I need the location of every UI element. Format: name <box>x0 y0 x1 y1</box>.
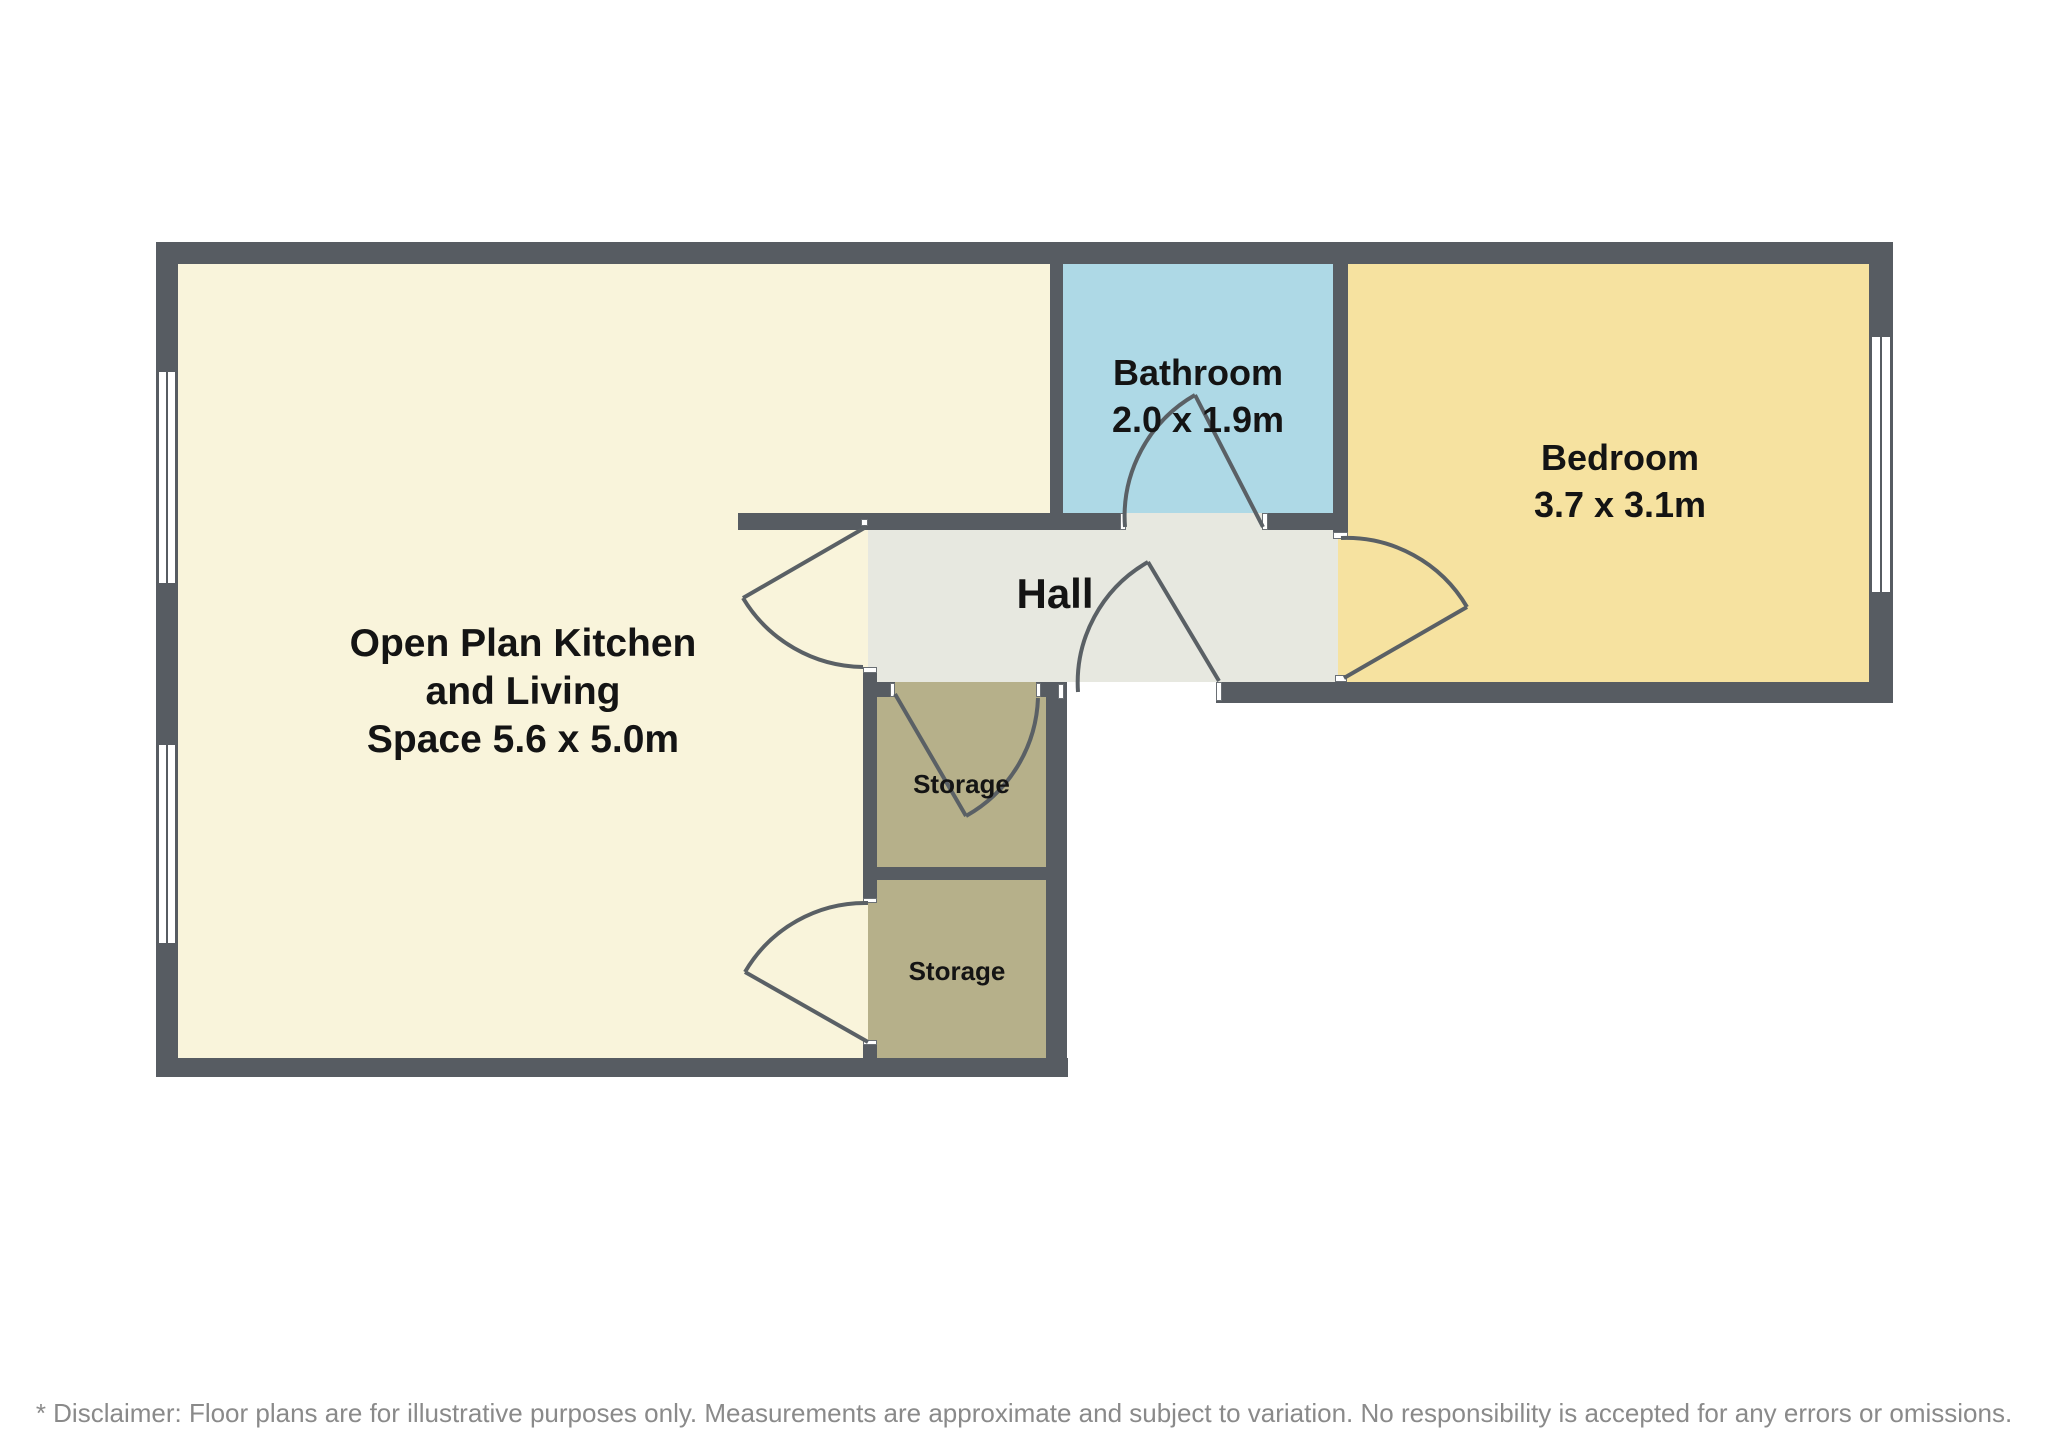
door-swing-bedroom <box>1341 538 1467 678</box>
floor-plan-canvas: Open Plan Kitchen and Living Space 5.6 x… <box>0 0 2048 1448</box>
room-label-storage-top: Storage <box>877 770 1046 798</box>
room-label-bedroom: Bedroom 3.7 x 3.1m <box>1420 434 1820 528</box>
room-label-bedroom-name: Bedroom <box>1420 434 1820 481</box>
room-label-bathroom: Bathroom 2.0 x 1.9m <box>1058 349 1338 443</box>
room-label-bathroom-name: Bathroom <box>1058 349 1338 396</box>
disclaimer-text: * Disclaimer: Floor plans are for illust… <box>0 1398 2048 1429</box>
room-label-bathroom-dimensions: 2.0 x 1.9m <box>1058 396 1338 443</box>
room-label-storage-bottom: Storage <box>868 957 1046 985</box>
room-label-kitchen-line1: Open Plan Kitchen <box>273 620 773 668</box>
room-label-kitchen-line2: and Living <box>273 668 773 716</box>
door-swing-storage-bottom <box>745 903 868 1042</box>
room-label-bedroom-dimensions: 3.7 x 3.1m <box>1420 481 1820 528</box>
room-label-kitchen-line3: Space 5.6 x 5.0m <box>273 716 773 764</box>
room-label-kitchen: Open Plan Kitchen and Living Space 5.6 x… <box>273 620 773 764</box>
room-label-hall: Hall <box>955 571 1155 617</box>
